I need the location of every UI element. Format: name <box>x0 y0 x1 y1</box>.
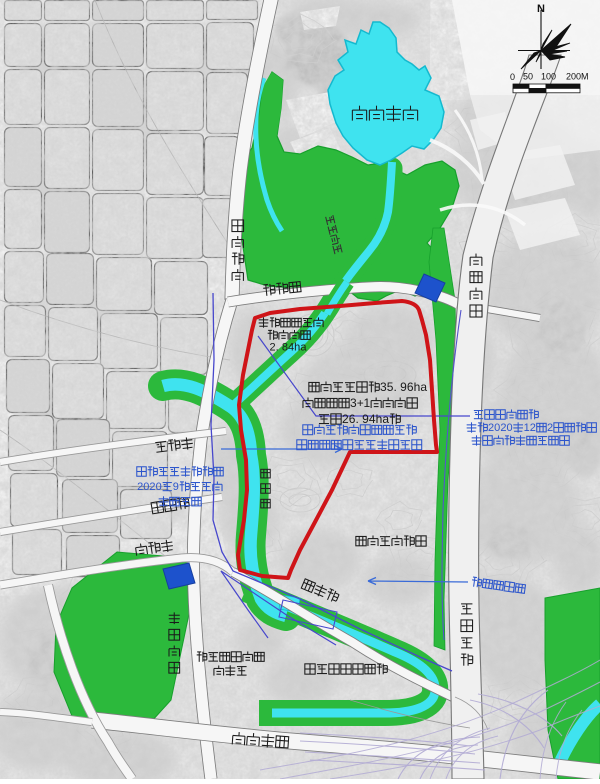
svg-text:a: a <box>300 342 307 354</box>
svg-text:100: 100 <box>541 72 556 82</box>
svg-text:N: N <box>537 3 545 15</box>
svg-text:h: h <box>414 380 421 394</box>
svg-text:2: 2 <box>547 422 553 434</box>
svg-text:200M: 200M <box>566 72 589 82</box>
svg-text:a: a <box>420 380 427 394</box>
svg-text:0: 0 <box>156 481 162 493</box>
svg-text:h: h <box>376 412 383 426</box>
svg-text:2: 2 <box>530 422 536 434</box>
svg-text:9: 9 <box>173 481 179 493</box>
svg-text:.: . <box>355 412 358 426</box>
svg-text:a: a <box>382 412 389 426</box>
svg-text:50: 50 <box>523 72 533 82</box>
svg-text:.: . <box>276 342 279 354</box>
svg-text:0: 0 <box>506 422 512 434</box>
svg-text:1: 1 <box>363 396 370 410</box>
svg-text:.: . <box>393 380 396 394</box>
svg-text:0: 0 <box>510 72 515 82</box>
